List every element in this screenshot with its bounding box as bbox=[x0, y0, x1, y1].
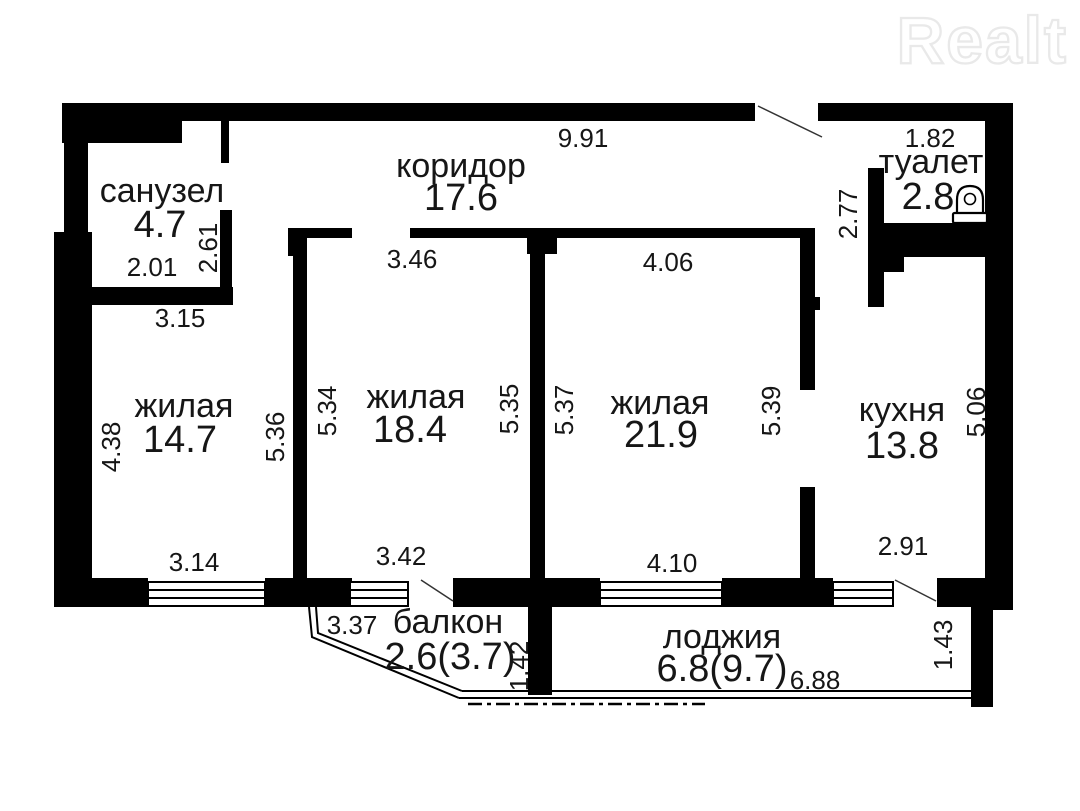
dim-zhilaya2-right: 5.35 bbox=[494, 384, 524, 435]
balcony-door-swing bbox=[421, 580, 453, 601]
wall-left-upper bbox=[64, 103, 88, 235]
wall-room3-kitchen-upper bbox=[800, 238, 815, 390]
dim-door-zhilaya2: 3.46 bbox=[387, 244, 438, 274]
floor-plan-drawing: санузел 4.7 коридор 17.6 туалет 2.8 жила… bbox=[0, 0, 1080, 811]
wall-room3-kitchen-bump bbox=[800, 297, 820, 310]
dim-lodzhiya-right: 1.43 bbox=[928, 620, 958, 671]
dim-zhilaya1-bottom: 3.14 bbox=[169, 547, 220, 577]
dim-door-zhilaya3: 4.06 bbox=[643, 247, 694, 277]
floor-plan: Realt bbox=[0, 0, 1080, 811]
window-kitchen bbox=[833, 582, 893, 606]
dim-kuhnya-bottom: 2.91 bbox=[878, 531, 929, 561]
window-room1 bbox=[148, 582, 265, 606]
dim-zhilaya3-left: 5.37 bbox=[549, 385, 579, 436]
kuhnya-name: кухня bbox=[859, 391, 945, 429]
wall-bottom-seg4 bbox=[722, 578, 833, 607]
dim-tualet-left: 2.77 bbox=[833, 189, 863, 240]
dim-zhilaya1-left: 4.38 bbox=[96, 422, 126, 473]
dim-zhilaya2-left: 5.34 bbox=[312, 386, 342, 437]
wall-tualet-bottom bbox=[868, 223, 985, 257]
koridor-area: 17.6 bbox=[424, 177, 498, 219]
zhilaya2-area: 18.4 bbox=[373, 409, 447, 451]
dim-zhilaya3-bottom: 4.10 bbox=[647, 548, 698, 578]
dim-lodzhiya-bottom: 6.88 bbox=[790, 665, 841, 695]
dim-balkon-right: 1.42 bbox=[504, 641, 534, 692]
dim-kuhnya-right: 5.06 bbox=[961, 387, 991, 438]
lodzhiya-area: 6.8(9.7) bbox=[657, 648, 788, 690]
wall-right bbox=[985, 103, 1013, 610]
dim-koridor-top: 9.91 bbox=[558, 123, 609, 153]
window-room3 bbox=[600, 582, 722, 606]
dim-zhilaya2-bottom: 3.42 bbox=[376, 541, 427, 571]
dim-zhilaya1-right: 5.36 bbox=[260, 412, 290, 463]
zhilaya3-area: 21.9 bbox=[624, 414, 698, 456]
wall-room2-room3 bbox=[530, 238, 545, 578]
kitchen-loggia-door-swing bbox=[895, 580, 936, 601]
toilet-icon bbox=[953, 186, 987, 223]
sanuzel-area: 4.7 bbox=[134, 204, 187, 246]
dim-sanuzel-below: 3.15 bbox=[155, 303, 206, 333]
dim-sanuzel-right: 2.61 bbox=[193, 223, 223, 274]
zhilaya1-area: 14.7 bbox=[143, 419, 217, 461]
toilet-base-shape bbox=[953, 213, 987, 223]
dim-sanuzel-width: 2.01 bbox=[127, 252, 178, 282]
wall-left-lower bbox=[54, 232, 92, 607]
wall-room1-room2 bbox=[293, 238, 307, 578]
kuhnya-area: 13.8 bbox=[865, 425, 939, 467]
wall-room3-kitchen-lower bbox=[800, 487, 815, 578]
wall-kitchen-step bbox=[884, 257, 904, 272]
dim-zhilaya3-right: 5.39 bbox=[756, 386, 786, 437]
wall-bottom-seg1 bbox=[54, 578, 148, 607]
dim-balkon-top: 3.37 bbox=[327, 610, 378, 640]
wall-top-right bbox=[818, 103, 1013, 121]
wall-corridor-b bbox=[410, 228, 815, 238]
tualet-area: 2.8 bbox=[902, 176, 955, 218]
toilet-flush-circle bbox=[965, 194, 976, 205]
wall-sanuzel-right-top bbox=[221, 118, 229, 163]
wall-loggia-right bbox=[971, 578, 993, 707]
wall-bottom-seg2 bbox=[265, 578, 352, 607]
entrance-door-swing bbox=[758, 106, 822, 137]
balkon-area: 2.6(3.7) bbox=[385, 636, 516, 678]
dim-tualet-top: 1.82 bbox=[905, 123, 956, 153]
